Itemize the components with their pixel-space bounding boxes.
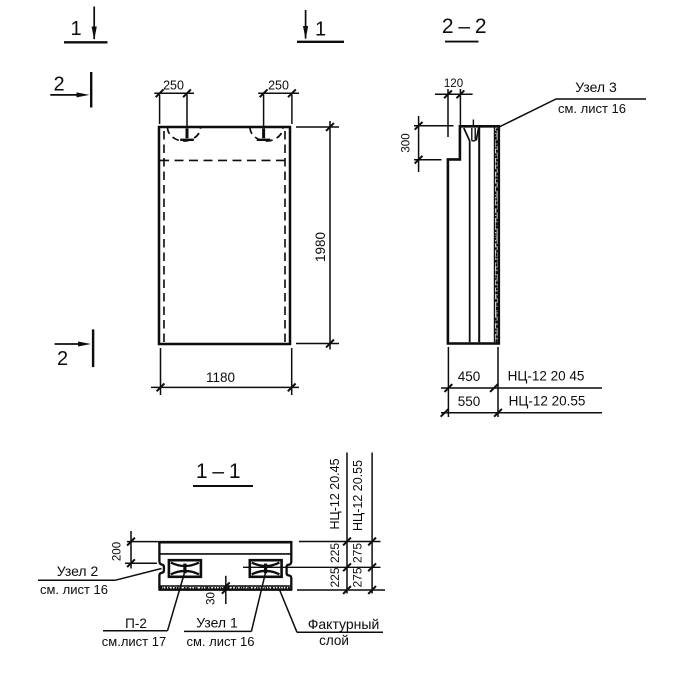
svg-text:НЦ-12 20 45: НЦ-12 20 45 xyxy=(508,369,585,384)
svg-text:Узел 2: Узел 2 xyxy=(57,563,99,579)
svg-text:Узел 1: Узел 1 xyxy=(196,615,238,631)
svg-text:30: 30 xyxy=(206,592,218,605)
svg-text:слой: слой xyxy=(319,633,349,648)
svg-text:П-2: П-2 xyxy=(125,616,147,631)
svg-text:120: 120 xyxy=(444,78,463,90)
svg-text:225: 225 xyxy=(328,567,342,587)
svg-text:2: 2 xyxy=(57,348,68,370)
svg-text:250: 250 xyxy=(163,79,184,93)
svg-text:1: 1 xyxy=(70,18,81,40)
svg-text:300: 300 xyxy=(401,133,413,152)
svg-text:см. лист 16: см. лист 16 xyxy=(186,634,254,649)
svg-text:250: 250 xyxy=(268,79,289,93)
svg-text:НЦ-12 20.55: НЦ-12 20.55 xyxy=(351,460,365,531)
svg-text:Узел 3: Узел 3 xyxy=(575,79,617,95)
svg-text:450: 450 xyxy=(458,369,481,384)
svg-text:2: 2 xyxy=(53,74,64,96)
svg-text:см.лист 17: см.лист 17 xyxy=(102,634,166,649)
svg-text:НЦ-12 20.55: НЦ-12 20.55 xyxy=(509,394,586,409)
svg-text:НЦ-12 20.45: НЦ-12 20.45 xyxy=(328,458,342,529)
svg-text:см. лист 16: см. лист 16 xyxy=(558,101,626,116)
svg-text:1980: 1980 xyxy=(313,232,328,262)
svg-text:2 – 2: 2 – 2 xyxy=(442,15,486,38)
svg-text:см. лист 16: см. лист 16 xyxy=(40,582,108,597)
svg-text:1: 1 xyxy=(315,19,326,41)
svg-text:200: 200 xyxy=(112,542,124,561)
svg-text:550: 550 xyxy=(458,394,481,409)
svg-text:1180: 1180 xyxy=(206,370,235,385)
svg-text:275: 275 xyxy=(351,543,365,563)
svg-text:225: 225 xyxy=(328,543,342,563)
svg-text:Фактурный: Фактурный xyxy=(308,616,380,632)
svg-text:1 – 1: 1 – 1 xyxy=(196,460,240,483)
svg-text:275: 275 xyxy=(351,567,365,587)
